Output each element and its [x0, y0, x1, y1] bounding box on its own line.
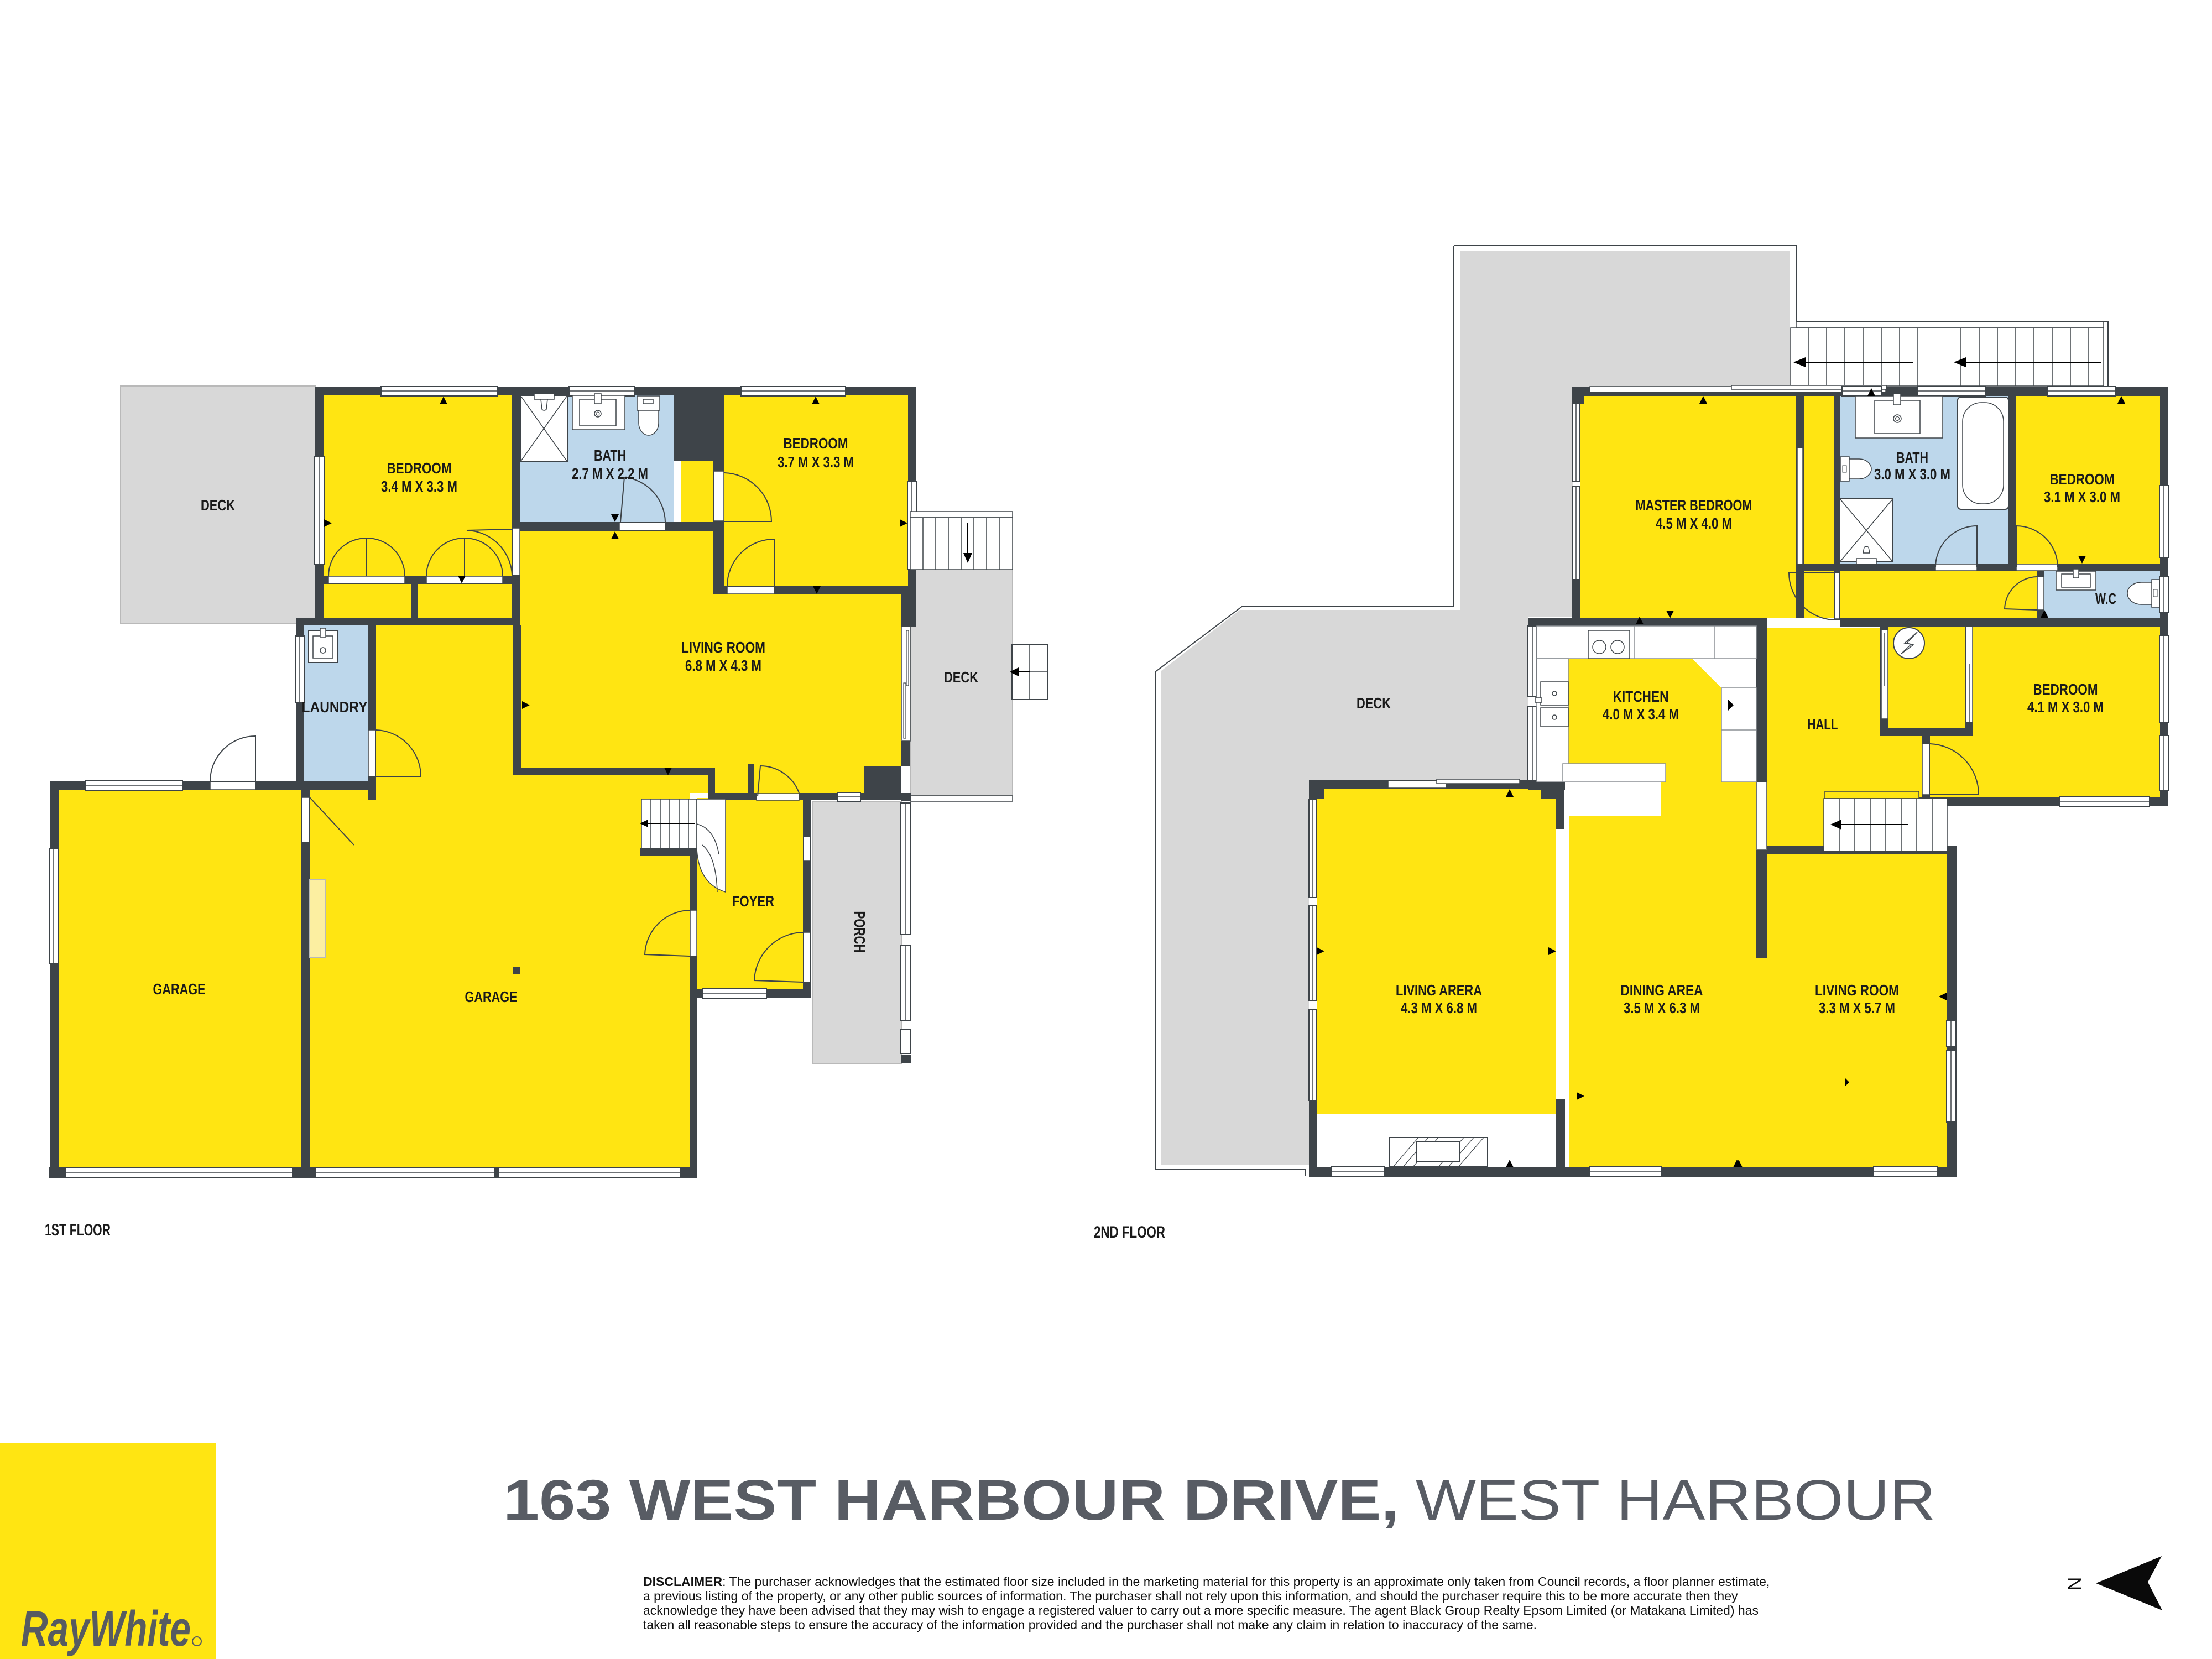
- svg-text:HALL: HALL: [1808, 716, 1838, 733]
- svg-text:BEDROOM: BEDROOM: [2033, 681, 2098, 698]
- svg-text:3.3 M X 5.7 M: 3.3 M X 5.7 M: [1819, 999, 1895, 1016]
- svg-text:BATH: BATH: [1896, 449, 1928, 466]
- svg-text:6.8 M X 4.3 M: 6.8 M X 4.3 M: [685, 657, 761, 674]
- svg-text:BEDROOM: BEDROOM: [2050, 471, 2115, 488]
- svg-text:DINING AREA: DINING AREA: [1621, 982, 1703, 999]
- svg-text:LIVING ROOM: LIVING ROOM: [1815, 982, 1899, 999]
- svg-text:4.1 M X 3.0 M: 4.1 M X 3.0 M: [2027, 698, 2104, 716]
- svg-text:KITCHEN: KITCHEN: [1613, 688, 1669, 705]
- svg-text:3.1 M X 3.0 M: 3.1 M X 3.0 M: [2044, 488, 2120, 505]
- svg-text:PORCH: PORCH: [851, 911, 868, 953]
- svg-text:a previous listing of the prop: a previous listing of the property, or a…: [643, 1589, 1738, 1603]
- svg-text:FOYER: FOYER: [732, 893, 774, 910]
- svg-text:BATH: BATH: [594, 447, 626, 464]
- svg-text:RayWhite: RayWhite: [21, 1601, 191, 1657]
- svg-text:LAUNDRY: LAUNDRY: [302, 698, 368, 716]
- svg-text:2ND FLOOR: 2ND FLOOR: [1094, 1223, 1165, 1241]
- svg-text:taken all reasonable steps to: taken all reasonable steps to ensure the…: [643, 1618, 1537, 1632]
- svg-text:4.3 M X 6.8 M: 4.3 M X 6.8 M: [1401, 999, 1477, 1016]
- svg-text:3.4 M X 3.3 M: 3.4 M X 3.3 M: [381, 478, 457, 495]
- svg-text:N: N: [2064, 1577, 2085, 1591]
- svg-text:DECK: DECK: [1357, 695, 1391, 712]
- svg-text:4.5 M X 4.0 M: 4.5 M X 4.0 M: [1656, 515, 1732, 532]
- svg-text:1ST FLOOR: 1ST FLOOR: [45, 1221, 111, 1239]
- svg-text:DECK: DECK: [944, 669, 978, 686]
- svg-text:LIVING ROOM: LIVING ROOM: [681, 639, 765, 656]
- svg-text:MASTER BEDROOM: MASTER BEDROOM: [1636, 497, 1752, 514]
- svg-text:163 WEST HARBOUR DRIVE,: 163 WEST HARBOUR DRIVE,: [503, 1468, 1399, 1532]
- svg-text:WEST HARBOUR: WEST HARBOUR: [1416, 1468, 1936, 1532]
- svg-text:3.7 M X 3.3 M: 3.7 M X 3.3 M: [778, 453, 854, 471]
- svg-text:DISCLAIMER: The purchaser ackn: DISCLAIMER: The purchaser acknowledges t…: [643, 1574, 1770, 1589]
- svg-text:2.7 M X 2.2 M: 2.7 M X 2.2 M: [572, 465, 648, 482]
- svg-text:GARAGE: GARAGE: [465, 988, 518, 1005]
- svg-text:W.C: W.C: [2095, 590, 2116, 607]
- svg-text:3.0 M X 3.0 M: 3.0 M X 3.0 M: [1874, 466, 1950, 483]
- svg-text:BEDROOM: BEDROOM: [387, 460, 452, 477]
- svg-text:BEDROOM: BEDROOM: [784, 435, 848, 452]
- svg-text:GARAGE: GARAGE: [153, 980, 206, 998]
- svg-text:4.0 M X 3.4 M: 4.0 M X 3.4 M: [1603, 706, 1679, 723]
- svg-text:acknowledge they have been adv: acknowledge they have been advised that …: [643, 1603, 1759, 1618]
- svg-text:DECK: DECK: [201, 497, 235, 514]
- svg-text:3.5 M X 6.3 M: 3.5 M X 6.3 M: [1624, 999, 1700, 1016]
- svg-text:LIVING ARERA: LIVING ARERA: [1396, 982, 1482, 999]
